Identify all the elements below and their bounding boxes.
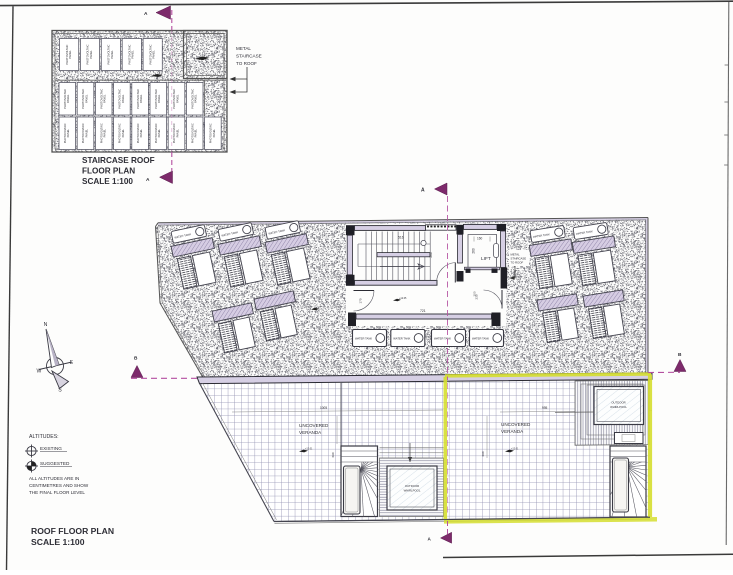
svg-text:PANEL: PANEL bbox=[103, 94, 107, 103]
svg-text:PANEL: PANEL bbox=[194, 129, 198, 138]
svg-text:PANEL: PANEL bbox=[175, 129, 179, 138]
svg-text:PANEL: PANEL bbox=[152, 50, 156, 59]
svg-text:160: 160 bbox=[477, 237, 483, 241]
svg-text:METAL: METAL bbox=[236, 46, 251, 51]
svg-text:VERANDA: VERANDA bbox=[501, 429, 524, 434]
svg-text:PANEL: PANEL bbox=[157, 129, 161, 138]
svg-text:PANEL: PANEL bbox=[66, 94, 70, 103]
svg-text:TO ROOF: TO ROOF bbox=[236, 61, 257, 66]
svg-text:SCALE 1:100: SCALE 1:100 bbox=[82, 177, 133, 186]
svg-text:UNCOVERED: UNCOVERED bbox=[501, 422, 531, 427]
svg-text:+12.01: +12.01 bbox=[305, 448, 313, 451]
svg-text:PANEL: PANEL bbox=[110, 50, 114, 59]
svg-text:PANEL: PANEL bbox=[121, 94, 125, 103]
svg-text:N: N bbox=[44, 322, 48, 328]
svg-text:1005: 1005 bbox=[320, 406, 327, 410]
svg-text:UNCOVERED: UNCOVERED bbox=[299, 423, 329, 428]
svg-text:260: 260 bbox=[472, 248, 476, 254]
svg-text:PANEL: PANEL bbox=[66, 129, 70, 138]
svg-text:EXISTING: EXISTING bbox=[40, 446, 62, 451]
svg-text:PANEL: PANEL bbox=[194, 94, 198, 103]
svg-text:WHIRLPOOL: WHIRLPOOL bbox=[610, 405, 627, 409]
svg-text:PANEL: PANEL bbox=[139, 94, 143, 103]
svg-text:E: E bbox=[70, 360, 74, 366]
svg-text:CENTIMETRES AND SHOW: CENTIMETRES AND SHOW bbox=[29, 483, 89, 488]
svg-text:SUGGESTED: SUGGESTED bbox=[40, 461, 70, 466]
svg-text:SCALE 1:100: SCALE 1:100 bbox=[31, 537, 85, 547]
svg-text:260: 260 bbox=[429, 252, 433, 258]
svg-text:A: A bbox=[421, 188, 425, 194]
svg-text:TO ROOF: TO ROOF bbox=[511, 261, 524, 265]
svg-text:170: 170 bbox=[359, 298, 363, 303]
svg-text:PANEL: PANEL bbox=[139, 129, 143, 138]
svg-text:PANEL: PANEL bbox=[68, 50, 72, 59]
svg-text:516: 516 bbox=[398, 236, 404, 240]
svg-text:STAIRCASE ROOF: STAIRCASE ROOF bbox=[82, 156, 155, 165]
svg-text:WHIRLPOOL: WHIRLPOOL bbox=[404, 489, 421, 493]
svg-text:+12.01: +12.01 bbox=[511, 448, 519, 451]
svg-text:PANEL: PANEL bbox=[157, 94, 161, 103]
svg-text:VERANDA: VERANDA bbox=[299, 430, 322, 435]
svg-text:200: 200 bbox=[473, 291, 477, 296]
svg-text:B: B bbox=[678, 352, 682, 358]
svg-text:B: B bbox=[134, 356, 138, 362]
svg-text:S: S bbox=[58, 388, 62, 394]
svg-text:WATER TANK: WATER TANK bbox=[393, 336, 410, 340]
svg-text:WATER TANK: WATER TANK bbox=[434, 336, 451, 340]
svg-text:ALTITUDES:: ALTITUDES: bbox=[29, 434, 59, 440]
svg-text:W: W bbox=[37, 369, 42, 375]
svg-text:+4.57: +4.57 bbox=[203, 57, 209, 59]
svg-text:+4.57: +4.57 bbox=[158, 73, 164, 75]
svg-text:PANEL: PANEL bbox=[84, 94, 88, 103]
svg-text:ROOF FLOOR PLAN: ROOF FLOOR PLAN bbox=[31, 526, 114, 536]
svg-text:PANEL: PANEL bbox=[121, 129, 125, 138]
svg-text:PANEL: PANEL bbox=[212, 129, 216, 138]
svg-text:ALL ALTITUDES ARE IN: ALL ALTITUDES ARE IN bbox=[29, 476, 79, 481]
svg-text:STAIRCASE: STAIRCASE bbox=[236, 54, 262, 59]
svg-text:721: 721 bbox=[420, 309, 426, 313]
svg-text:THE FINAL FLOOR LEVEL: THE FINAL FLOOR LEVEL bbox=[29, 490, 85, 495]
svg-text:WATER TANK: WATER TANK bbox=[355, 336, 372, 340]
svg-text:PANEL: PANEL bbox=[131, 50, 135, 59]
svg-text:A: A bbox=[144, 11, 148, 17]
svg-text:690: 690 bbox=[481, 451, 485, 456]
svg-text:WATER TANK: WATER TANK bbox=[472, 336, 489, 340]
svg-text:A: A bbox=[146, 177, 150, 183]
svg-text:PANEL: PANEL bbox=[103, 129, 107, 138]
svg-text:+12.05: +12.05 bbox=[399, 297, 407, 300]
svg-text:PANEL: PANEL bbox=[89, 50, 93, 59]
svg-text:690: 690 bbox=[331, 452, 335, 457]
svg-text:LIFT: LIFT bbox=[481, 256, 491, 262]
svg-text:FLOOR PLAN: FLOOR PLAN bbox=[82, 167, 135, 176]
svg-text:PANEL: PANEL bbox=[175, 94, 179, 103]
svg-text:OUTDOOR: OUTDOOR bbox=[611, 401, 625, 405]
svg-text:PANEL: PANEL bbox=[84, 129, 88, 138]
svg-text:995: 995 bbox=[542, 406, 548, 410]
svg-text:OUTDOOR: OUTDOOR bbox=[405, 484, 419, 488]
svg-text:+4.37: +4.37 bbox=[316, 307, 322, 309]
